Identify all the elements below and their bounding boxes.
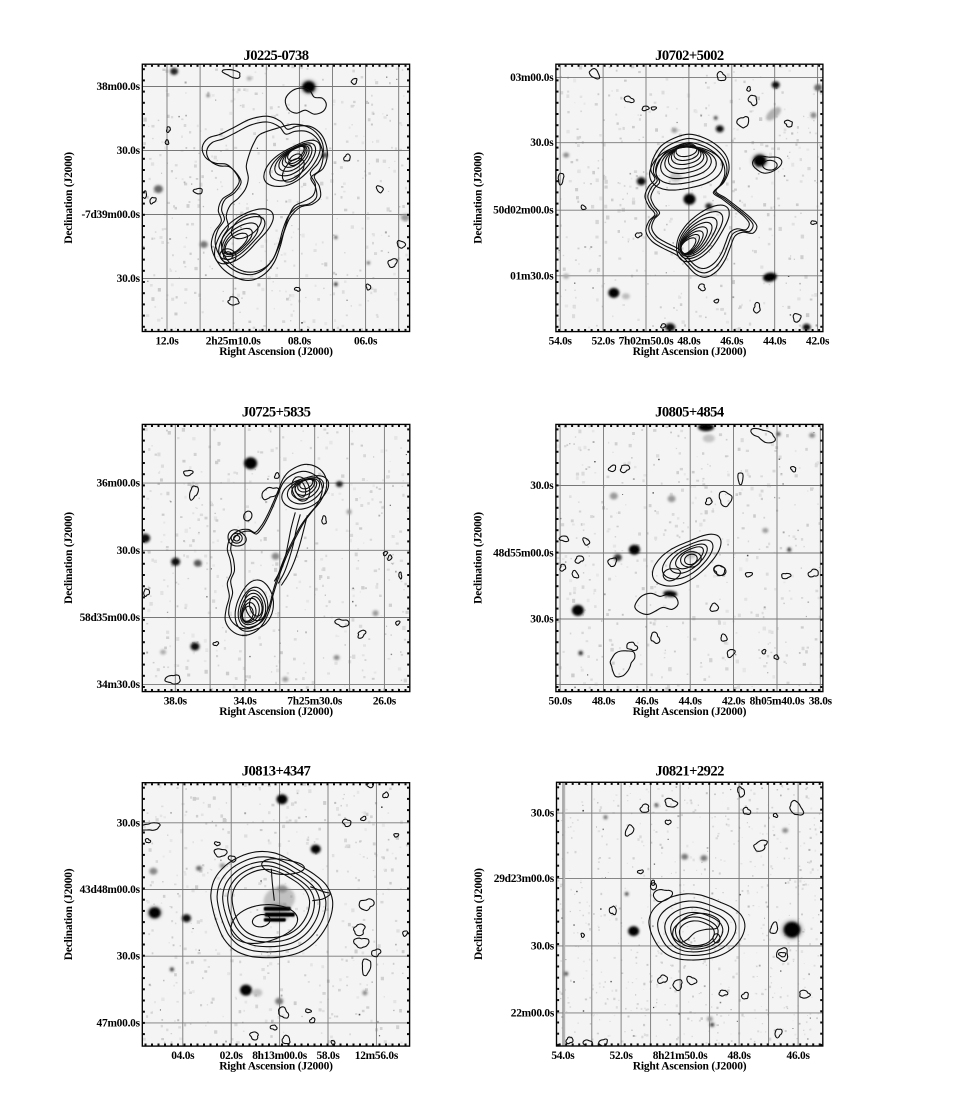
svg-text:03m00.0s: 03m00.0s <box>510 72 554 84</box>
svg-text:30.0s: 30.0s <box>530 480 554 492</box>
svg-text:J0725+5835: J0725+5835 <box>242 404 311 420</box>
svg-text:Declination (J2000): Declination (J2000) <box>63 868 75 960</box>
svg-text:58d35m00.0s: 58d35m00.0s <box>80 612 141 624</box>
svg-text:54.0s: 54.0s <box>549 336 573 348</box>
svg-text:J0821+2922: J0821+2922 <box>655 763 724 779</box>
svg-text:38.0s: 38.0s <box>809 696 833 708</box>
svg-text:47m00.0s: 47m00.0s <box>97 1017 141 1029</box>
svg-text:-7d39m00.0s: -7d39m00.0s <box>81 209 140 221</box>
svg-text:J0702+5002: J0702+5002 <box>655 48 724 64</box>
svg-text:36m00.0s: 36m00.0s <box>97 478 141 490</box>
svg-text:30.0s: 30.0s <box>117 273 141 285</box>
svg-text:Declination (J2000): Declination (J2000) <box>472 152 484 244</box>
svg-text:Declination (J2000): Declination (J2000) <box>63 152 75 244</box>
svg-text:30.0s: 30.0s <box>117 545 141 557</box>
svg-text:30.0s: 30.0s <box>530 614 554 626</box>
svg-text:Declination (J2000): Declination (J2000) <box>63 512 75 604</box>
svg-text:Right Ascension (J2000): Right Ascension (J2000) <box>633 1061 747 1073</box>
svg-text:30.0s: 30.0s <box>117 145 141 157</box>
svg-text:54.0s: 54.0s <box>551 1050 575 1062</box>
svg-text:38.0s: 38.0s <box>164 696 188 708</box>
svg-text:J0813+4347: J0813+4347 <box>242 764 311 780</box>
svg-text:Declination (J2000): Declination (J2000) <box>473 868 485 960</box>
svg-text:Right Ascension (J2000): Right Ascension (J2000) <box>219 706 333 718</box>
svg-text:30.0s: 30.0s <box>531 940 555 952</box>
svg-text:52.0s: 52.0s <box>610 1050 634 1062</box>
svg-text:29d23m00.0s: 29d23m00.0s <box>494 873 555 885</box>
svg-text:04.0s: 04.0s <box>171 1050 195 1062</box>
svg-text:38m00.0s: 38m00.0s <box>97 81 141 93</box>
svg-text:J0805+4854: J0805+4854 <box>655 404 725 420</box>
svg-text:Right Ascension (J2000): Right Ascension (J2000) <box>219 346 333 358</box>
svg-text:J0225-0738: J0225-0738 <box>243 48 308 64</box>
svg-text:30.0s: 30.0s <box>530 137 554 149</box>
svg-text:Right Ascension (J2000): Right Ascension (J2000) <box>633 346 747 358</box>
svg-text:48.0s: 48.0s <box>592 696 616 708</box>
svg-text:06.0s: 06.0s <box>354 336 378 348</box>
svg-text:52.0s: 52.0s <box>592 336 616 348</box>
svg-text:30.0s: 30.0s <box>117 817 141 829</box>
svg-text:Right Ascension (J2000): Right Ascension (J2000) <box>633 706 747 718</box>
svg-text:50.0s: 50.0s <box>549 696 573 708</box>
svg-text:30.0s: 30.0s <box>117 951 141 963</box>
svg-text:8h05m40.0s: 8h05m40.0s <box>750 696 806 708</box>
svg-text:30.0s: 30.0s <box>531 808 555 820</box>
svg-text:Declination (J2000): Declination (J2000) <box>472 512 484 604</box>
svg-text:46.0s: 46.0s <box>787 1050 811 1062</box>
svg-text:43d48m00.0s: 43d48m00.0s <box>80 884 141 896</box>
svg-text:44.0s: 44.0s <box>763 336 787 348</box>
svg-text:50d02m00.0s: 50d02m00.0s <box>493 205 554 217</box>
svg-text:12m56.0s: 12m56.0s <box>355 1050 399 1062</box>
svg-text:42.0s: 42.0s <box>806 336 830 348</box>
svg-text:26.0s: 26.0s <box>373 696 397 708</box>
svg-text:48d55m00.0s: 48d55m00.0s <box>493 548 554 560</box>
svg-text:34m30.0s: 34m30.0s <box>97 679 141 691</box>
svg-text:Right Ascension (J2000): Right Ascension (J2000) <box>219 1061 333 1073</box>
svg-text:01m30.0s: 01m30.0s <box>510 270 554 282</box>
svg-text:12.0s: 12.0s <box>155 336 179 348</box>
svg-text:22m00.0s: 22m00.0s <box>511 1007 555 1019</box>
